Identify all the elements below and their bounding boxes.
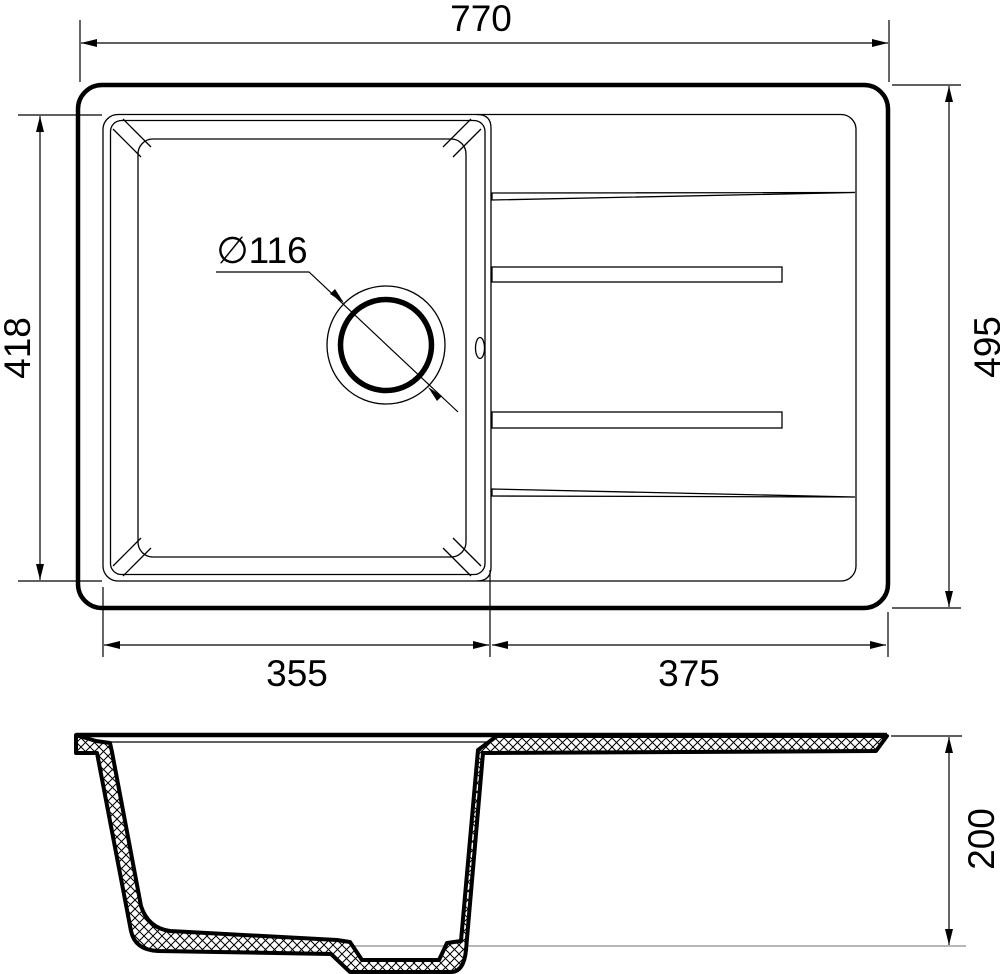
groove-bar-lower: [492, 412, 782, 428]
groove-wedge-top: [492, 193, 855, 201]
arrowhead: [428, 387, 442, 401]
bowl-bottom-edge: [138, 139, 466, 557]
arrowhead: [36, 116, 44, 132]
extension-line: [103, 570, 490, 657]
arrowhead: [81, 39, 97, 47]
arrowhead: [36, 564, 44, 580]
dim-text-drain-diameter: ∅116: [216, 230, 307, 271]
arrowhead: [870, 641, 886, 649]
top-view: [78, 85, 888, 608]
section-material-band: [76, 735, 887, 972]
arrowhead: [945, 86, 953, 102]
arrowhead: [330, 289, 344, 303]
dim-bowl-width: 355: [103, 570, 490, 694]
sink-technical-drawing: 770 495 418 355: [0, 0, 1000, 974]
arrowhead: [104, 641, 120, 649]
dim-bowl-length: 418: [0, 115, 102, 581]
dim-text-bowl-length: 418: [0, 317, 38, 379]
sink-outer-edge: [78, 85, 888, 608]
bowl-corner-chamfers: [113, 119, 481, 576]
dim-overall-width: 770: [80, 0, 889, 82]
dim-overall-depth: 495: [892, 85, 1000, 608]
dim-text-bowl-depth: 200: [961, 808, 1000, 870]
rim-inner-edge: [103, 115, 856, 582]
arrowhead: [945, 737, 953, 753]
dim-text-overall-depth: 495: [967, 316, 1000, 378]
dim-bowl-depth: 200: [891, 736, 1000, 945]
arrowhead: [945, 929, 953, 945]
dim-text-overall-width: 770: [450, 0, 512, 39]
dim-drainboard-width: 375: [492, 612, 888, 694]
dim-text-bowl-width: 355: [266, 653, 328, 694]
dim-text-drainboard-width: 375: [658, 653, 720, 694]
dimensions: 770 495 418 355: [0, 0, 1000, 945]
tap-hole: [476, 338, 485, 359]
arrowhead: [872, 39, 888, 47]
drainboard-grooves: [492, 193, 855, 498]
arrowhead: [945, 591, 953, 607]
arrowhead: [492, 641, 508, 649]
section-view: [76, 735, 966, 972]
arrowhead: [473, 641, 489, 649]
groove-bar-upper: [492, 267, 782, 282]
groove-wedge-bottom: [492, 489, 855, 497]
extension-line: [892, 85, 961, 608]
drawing-svg: 770 495 418 355: [0, 0, 1000, 974]
